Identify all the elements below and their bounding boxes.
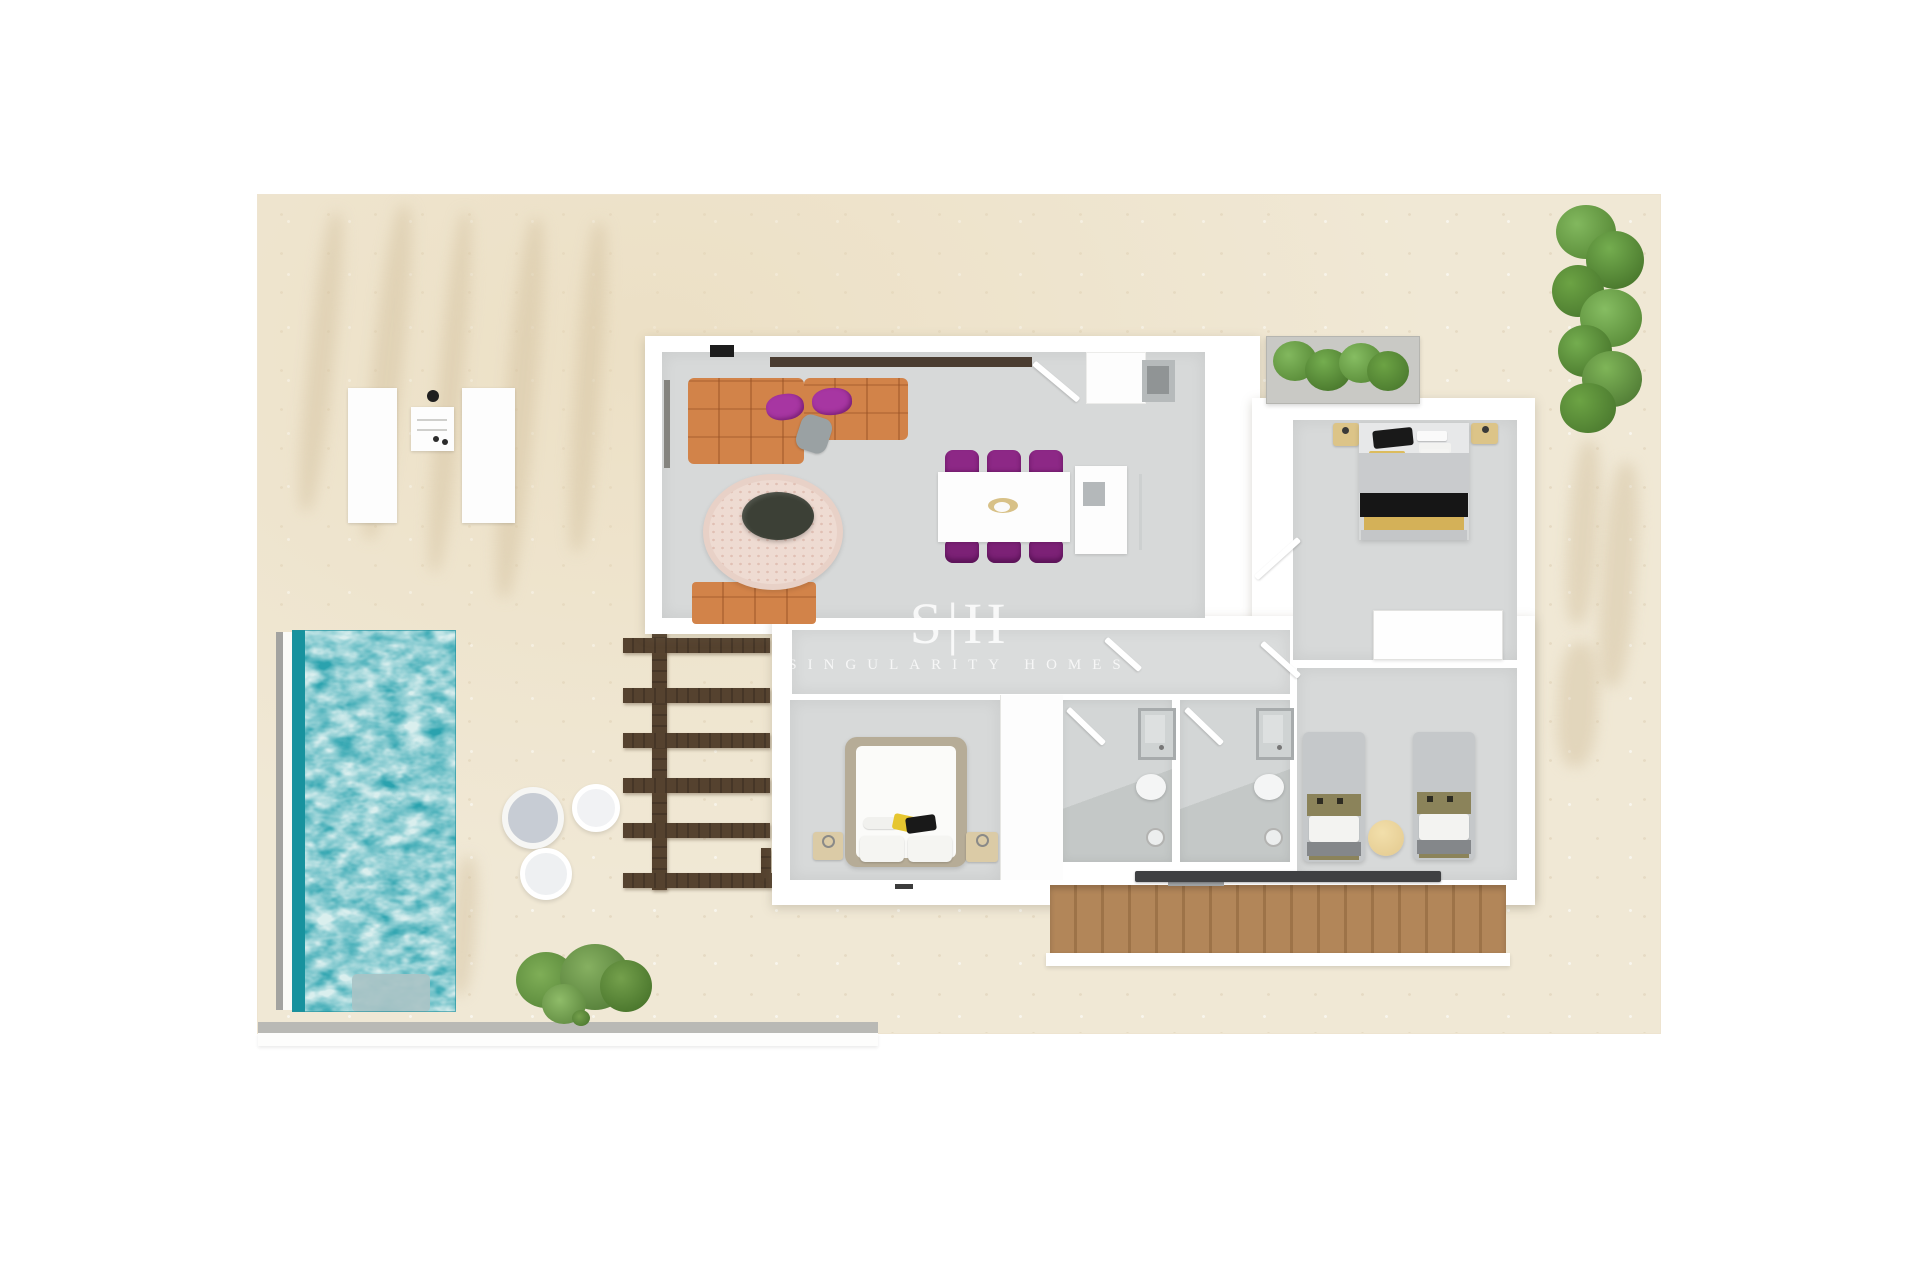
bbq-knob bbox=[442, 439, 448, 445]
closet-column bbox=[1000, 695, 1063, 880]
bed-item bbox=[1427, 796, 1433, 802]
pergola-beam bbox=[623, 873, 772, 888]
bbq-knob bbox=[433, 436, 439, 442]
lamp bbox=[976, 834, 989, 847]
twin-bed bbox=[1303, 732, 1365, 862]
pillow bbox=[908, 836, 952, 862]
bbq-unit bbox=[411, 407, 454, 451]
bed-item bbox=[1317, 798, 1323, 804]
dining-chair bbox=[945, 541, 979, 563]
floor-drain bbox=[1146, 828, 1165, 847]
bed-foot bbox=[1361, 530, 1467, 540]
olive-strip bbox=[1309, 856, 1359, 860]
boundary-wall-left bbox=[276, 632, 283, 1010]
garden-bush bbox=[516, 944, 656, 1034]
lamp bbox=[1482, 426, 1489, 433]
shower-drain bbox=[1277, 745, 1282, 750]
boundary-wall-white bbox=[258, 1033, 878, 1046]
olive-band bbox=[1417, 792, 1471, 814]
pergola-post bbox=[761, 848, 771, 878]
door-handle bbox=[895, 884, 913, 889]
stair-base-ledge bbox=[1046, 953, 1510, 966]
planter-box bbox=[1266, 336, 1420, 404]
pergola-beam bbox=[623, 638, 770, 653]
round-pouf bbox=[1368, 820, 1404, 856]
shower bbox=[1138, 708, 1176, 760]
wall-fin bbox=[1139, 474, 1142, 550]
white-pillow bbox=[1417, 431, 1447, 441]
duvet bbox=[1359, 453, 1469, 493]
staircase bbox=[1050, 885, 1506, 953]
hall-appliance bbox=[1142, 360, 1175, 402]
bbq-line bbox=[417, 429, 447, 431]
bed-item bbox=[1447, 796, 1453, 802]
double-bed bbox=[1359, 423, 1469, 540]
appliance-panel bbox=[1147, 366, 1169, 394]
sun-lounger bbox=[462, 388, 515, 523]
window-frame bbox=[664, 380, 670, 468]
glass-door-track bbox=[770, 357, 1032, 367]
bed-foot bbox=[1307, 842, 1361, 856]
coffee-table bbox=[742, 492, 814, 540]
floor-drain bbox=[1264, 828, 1283, 847]
yellow-foot-throw bbox=[1364, 517, 1464, 530]
shower-tray bbox=[1263, 715, 1283, 743]
shower bbox=[1256, 708, 1294, 760]
pillow bbox=[860, 836, 904, 862]
sideboard-cabinet bbox=[1075, 466, 1127, 554]
lamp bbox=[1342, 427, 1349, 434]
bbq-faucet bbox=[427, 390, 439, 402]
sun-lounger bbox=[348, 388, 397, 523]
bbq-line bbox=[417, 419, 447, 421]
shower-tray bbox=[1145, 715, 1165, 743]
twin-bed bbox=[1413, 732, 1475, 860]
floor-plan-render: S|H SINGULARITY HOMES bbox=[0, 0, 1920, 1280]
black-blanket bbox=[1360, 493, 1468, 517]
dining-chair bbox=[1029, 541, 1063, 563]
wardrobe bbox=[1373, 610, 1503, 660]
olive-band bbox=[1307, 794, 1361, 816]
round-pouf bbox=[520, 848, 572, 900]
round-pouf bbox=[572, 784, 620, 832]
toilet bbox=[1136, 774, 1166, 800]
pillow bbox=[1309, 816, 1359, 842]
bed-item bbox=[1337, 798, 1343, 804]
pergola-beam-vertical bbox=[652, 632, 667, 890]
dining-chair bbox=[987, 541, 1021, 563]
lamp bbox=[822, 835, 835, 848]
hedge-plant bbox=[1552, 203, 1652, 435]
pillow bbox=[1419, 814, 1469, 840]
table-bowl bbox=[994, 502, 1010, 512]
cabinet-inset bbox=[1083, 482, 1105, 506]
pool-deck-edge bbox=[283, 632, 292, 1010]
pergola-beam bbox=[623, 688, 770, 703]
dining-table bbox=[938, 472, 1070, 542]
swimming-pool bbox=[292, 630, 456, 1012]
olive-strip bbox=[1419, 854, 1469, 858]
pergola-beam bbox=[623, 733, 770, 748]
corridor-floor bbox=[792, 630, 1290, 694]
shower-drain bbox=[1159, 745, 1164, 750]
small-sofa bbox=[692, 582, 816, 624]
sofa-left-section bbox=[688, 378, 804, 464]
pergola-beam bbox=[623, 778, 770, 793]
hall-closet bbox=[1086, 352, 1146, 404]
wall-vent bbox=[710, 345, 734, 357]
pergola-beam bbox=[623, 823, 770, 838]
toilet bbox=[1254, 774, 1284, 800]
handrail bbox=[1135, 871, 1441, 882]
round-pouf bbox=[502, 787, 564, 849]
bed-foot bbox=[1417, 840, 1471, 854]
